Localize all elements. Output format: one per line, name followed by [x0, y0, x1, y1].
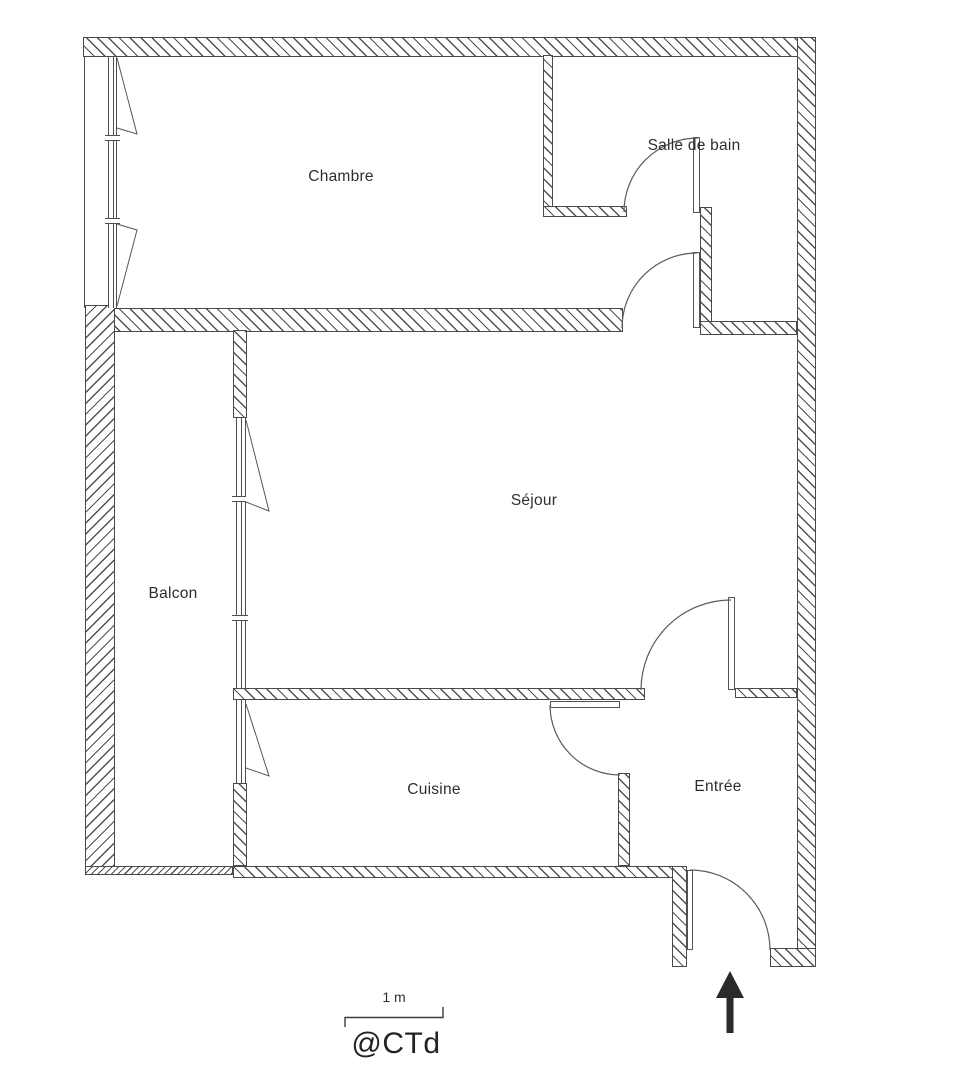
casement-flap-sejour: [246, 420, 269, 511]
credit-watermark: @CTd: [351, 1027, 440, 1061]
scale-bar-bracket: [345, 1007, 443, 1027]
plan-linework: [0, 0, 961, 1080]
room-label-entree: Entrée: [694, 778, 741, 796]
room-label-salle-de-bain: Salle de bain: [648, 137, 741, 155]
floor-plan: Chambre Salle de bain Séjour Balcon Cuis…: [0, 0, 961, 1080]
room-label-cuisine: Cuisine: [407, 781, 460, 799]
room-label-balcon: Balcon: [149, 585, 198, 603]
scale-label: 1 m: [382, 989, 405, 1005]
door-swing-arc-sejour-entree: [641, 600, 731, 690]
door-swing-arc-hall-sejour: [622, 253, 697, 328]
casement-flap-chambre-top: [117, 58, 137, 134]
casement-flap-chambre-bottom: [117, 224, 137, 306]
door-swing-arc-cuisine: [550, 705, 620, 775]
room-label-chambre: Chambre: [308, 168, 374, 186]
entrance-arrow-icon: [716, 971, 744, 1033]
casement-flap-cuisine: [246, 704, 269, 776]
door-swing-arc-front-door: [690, 870, 770, 950]
room-label-sejour: Séjour: [511, 492, 557, 510]
